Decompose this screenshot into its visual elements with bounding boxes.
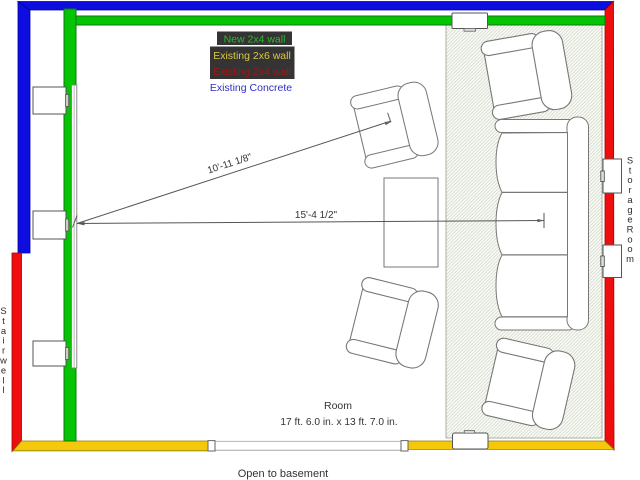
svg-text:Room: Room bbox=[324, 400, 352, 412]
svg-text:Existing 2x6 wall: Existing 2x6 wall bbox=[213, 50, 291, 62]
svg-text:Existing 2x4 wall: Existing 2x4 wall bbox=[213, 66, 291, 78]
svg-text:New 2x4 wall: New 2x4 wall bbox=[224, 34, 286, 46]
svg-text:Open to basement: Open to basement bbox=[238, 468, 329, 480]
svg-text:Existing Concrete: Existing Concrete bbox=[210, 82, 292, 94]
svg-text:m: m bbox=[626, 253, 634, 264]
svg-text:15'-4 1/2": 15'-4 1/2" bbox=[295, 210, 338, 221]
svg-text:17 ft. 6.0 in. x 13 ft. 7.0 in: 17 ft. 6.0 in. x 13 ft. 7.0 in. bbox=[280, 417, 397, 428]
svg-text:l: l bbox=[2, 384, 4, 395]
